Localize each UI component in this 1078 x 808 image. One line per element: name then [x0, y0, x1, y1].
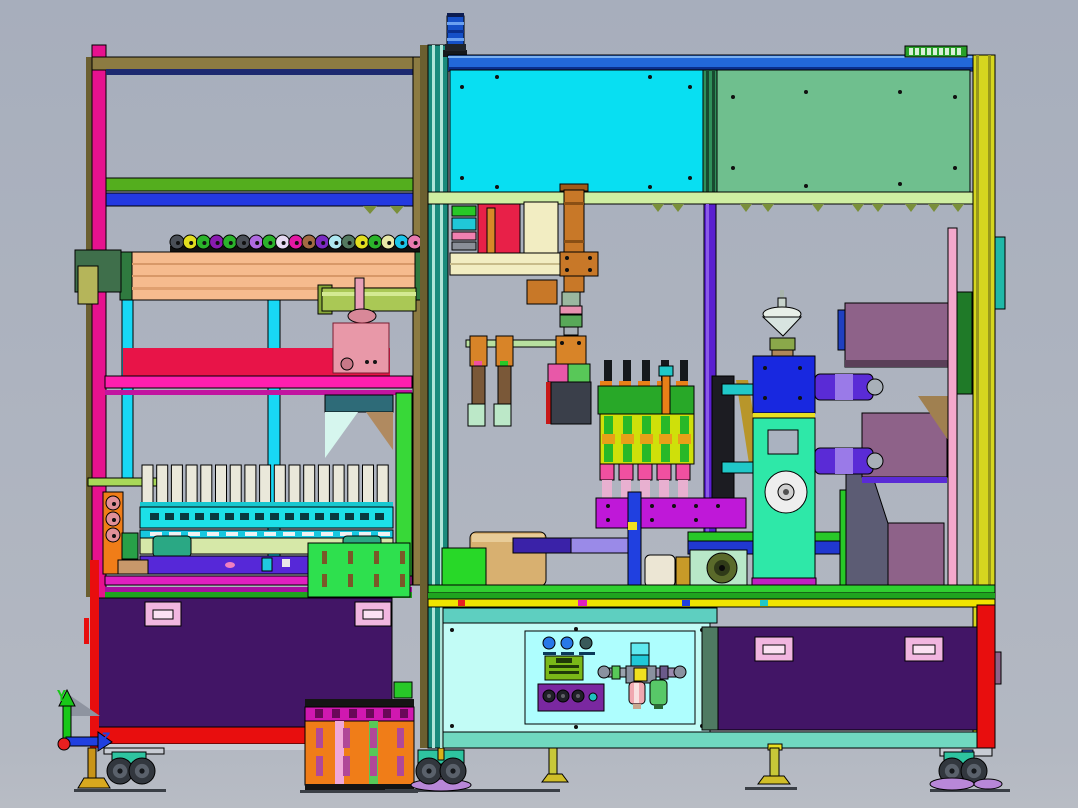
gold-coil — [676, 557, 690, 586]
green-cylinder — [322, 288, 416, 311]
small-button — [589, 693, 597, 701]
deck-green-band — [428, 585, 995, 593]
rail-slot — [315, 513, 324, 520]
rail-slot — [210, 513, 219, 520]
cylinder-endcap — [867, 453, 883, 469]
center-rear-post — [420, 45, 428, 748]
leg-tab — [628, 522, 637, 530]
dash — [264, 532, 276, 536]
cabinet-handle-inner — [763, 645, 785, 654]
slate-edge — [546, 382, 551, 424]
left-mount-plate — [78, 266, 98, 304]
valve-stem — [642, 360, 650, 384]
valve-orange-column — [662, 376, 670, 414]
axis-z-arrow-body — [66, 737, 98, 746]
cabinet-handle-inner — [913, 645, 935, 654]
shadow — [385, 789, 560, 792]
crate-band-slot — [400, 709, 408, 718]
copper-ring-block — [560, 252, 598, 276]
teal-shaft — [722, 384, 754, 395]
right-red-post — [977, 605, 995, 748]
deck-tick — [578, 600, 587, 606]
feeder-disc-hole — [216, 241, 220, 245]
rail-slot — [300, 513, 309, 520]
caster-wheel-hub — [139, 768, 144, 773]
crate-band-slot — [349, 709, 357, 718]
feeder-disc-hole — [374, 241, 378, 245]
cyan-guard-panel — [450, 70, 703, 193]
indicator-lamp — [543, 637, 555, 649]
white-cylinder — [645, 555, 675, 587]
rail-slot — [330, 513, 339, 520]
cream-column — [524, 202, 558, 253]
crate-slot — [370, 728, 377, 748]
leveling-foot-stem — [88, 748, 96, 782]
table-bolt — [716, 504, 720, 508]
table-bolt — [606, 518, 610, 522]
plate-slot — [348, 574, 353, 587]
peach-beam-stripe — [132, 275, 418, 277]
feeder-disc-hole — [202, 241, 206, 245]
indicator-lamp — [580, 637, 592, 649]
white-plate — [260, 465, 271, 503]
white-plate — [230, 465, 241, 503]
feeder-disc-hole — [189, 241, 193, 245]
coupler-nut — [564, 327, 578, 335]
deck-tick — [760, 600, 768, 606]
feeder-disc-hole — [308, 241, 312, 245]
leveling-foot-pad — [78, 778, 110, 788]
bracket-pink — [548, 364, 568, 382]
bolt — [565, 256, 569, 260]
panel-screw — [688, 85, 692, 89]
terminal-slot — [915, 48, 919, 55]
divider-stripe — [706, 70, 709, 193]
valve-pillar — [602, 480, 612, 498]
left-top-beam — [92, 57, 425, 70]
plate-slot — [374, 574, 379, 587]
panel-screw — [460, 176, 464, 180]
cylinder-highlight — [322, 292, 416, 296]
mint-plate — [494, 404, 511, 426]
copper-ring — [564, 240, 584, 243]
cylinder-endcap — [867, 379, 883, 395]
teal-block — [325, 395, 393, 412]
stack-block — [452, 242, 476, 250]
crate-band-slot — [315, 709, 323, 718]
green-guard-panel — [717, 70, 970, 193]
orange-tube — [487, 208, 495, 254]
panel-screw — [953, 166, 957, 170]
copper-block — [527, 280, 557, 304]
rail-slot — [180, 513, 189, 520]
crate-slot — [343, 728, 350, 748]
frl-lubricator-bowl — [650, 680, 667, 705]
feeder-disc-hole — [400, 241, 404, 245]
indicator-lamp — [561, 637, 573, 649]
panel-screw — [953, 95, 957, 99]
white-plate — [142, 465, 153, 503]
crate-slot — [397, 756, 404, 776]
plate-slot — [374, 551, 379, 564]
white-plate — [363, 465, 374, 503]
side-tab — [995, 652, 1001, 684]
table-bolt — [694, 504, 698, 508]
valve-pillar — [659, 480, 669, 498]
left-cross-rail — [88, 478, 166, 486]
terminal-slot — [945, 48, 949, 55]
motor-vent — [373, 360, 377, 364]
valve-collar — [640, 434, 653, 444]
axis-z-label: Z — [100, 731, 110, 747]
knob-hole — [112, 534, 116, 538]
coupler — [562, 292, 580, 306]
red-unit-box — [478, 204, 520, 254]
table-bolt — [694, 518, 698, 522]
orange-actuator — [556, 336, 586, 364]
funnel-base — [770, 338, 795, 350]
plate-rail — [140, 502, 393, 507]
valve-base — [676, 464, 690, 480]
caster-pad — [930, 778, 974, 790]
panel-screw — [574, 725, 578, 729]
lamp-label-mark — [561, 652, 574, 655]
axis-y-label: Y — [57, 687, 66, 705]
left-top-beam-navy-stripe — [106, 69, 425, 75]
panel-screw — [804, 90, 808, 94]
feeder-disc-hole — [282, 241, 286, 245]
left-green-beam — [106, 178, 413, 191]
terminal-slot — [927, 48, 931, 55]
plate-slot — [322, 551, 327, 564]
terminal-slot — [951, 48, 955, 55]
magenta-rail-thin — [105, 390, 412, 395]
panel-screw — [495, 185, 499, 189]
feeder-disc-hole — [334, 241, 338, 245]
bolt — [560, 341, 564, 345]
dash — [169, 532, 181, 536]
valve-collar — [678, 434, 691, 444]
white-plate — [289, 465, 300, 503]
leveling-foot-pad — [758, 776, 790, 784]
panel-screw — [495, 75, 499, 79]
green-plate — [442, 548, 486, 588]
deck-tick — [682, 600, 690, 606]
rail-slot — [375, 513, 384, 520]
band-widget — [225, 562, 235, 568]
post-highlight — [432, 45, 435, 748]
caster-wheel-hub — [949, 768, 954, 773]
gear-wheel-hub — [719, 565, 725, 571]
caster-wheel-hub — [117, 768, 122, 773]
cabinet-handle-inner — [363, 610, 383, 619]
white-plate — [333, 465, 344, 503]
dash — [302, 532, 314, 536]
dash — [359, 532, 371, 536]
terminal-slot — [909, 48, 913, 55]
table-bolt — [650, 518, 654, 522]
rail-slot — [285, 513, 294, 520]
yellow-stripe — [753, 413, 815, 418]
motor-bolt — [341, 358, 353, 370]
blue-tab — [838, 310, 845, 350]
button-center — [561, 694, 565, 698]
rail-slot — [360, 513, 369, 520]
bowl-tip — [654, 705, 663, 709]
deck-tick — [458, 600, 465, 606]
white-plate — [304, 465, 315, 503]
slate-block — [551, 382, 591, 424]
crate-slot — [397, 728, 404, 748]
panel-screw — [450, 724, 454, 728]
lamp-label-mark — [579, 652, 595, 655]
valve-teal-cap — [659, 366, 673, 376]
motor-vent — [365, 360, 369, 364]
dash — [150, 532, 162, 536]
divider-stripe — [712, 70, 715, 193]
mauve-box — [845, 303, 948, 367]
coupler-body — [560, 315, 582, 327]
frl-top-cap — [631, 643, 649, 655]
beacon-ring — [445, 44, 466, 51]
white-plate — [377, 465, 388, 503]
teal-shaft — [722, 462, 754, 473]
cad-viewport[interactable]: YZ — [0, 0, 1078, 808]
panel-screw — [898, 182, 902, 186]
valve-stem — [604, 360, 612, 384]
feeder-disc-hole — [229, 241, 233, 245]
stack-block — [452, 218, 476, 230]
rail-slot — [150, 513, 159, 520]
bolt — [565, 268, 569, 272]
terminal-slot — [939, 48, 943, 55]
button-center — [547, 694, 551, 698]
nameplate-line — [556, 658, 572, 663]
peach-beam-endcap — [120, 252, 132, 300]
crate-slot — [370, 756, 377, 776]
deck-yellow-band — [428, 599, 995, 607]
magenta-rail — [105, 376, 412, 388]
purple-table — [596, 498, 746, 528]
mauve-box-rail — [862, 477, 947, 483]
crate-tab — [394, 682, 412, 698]
tan-block — [118, 560, 148, 574]
white-plate — [348, 465, 359, 503]
table-bolt — [672, 504, 676, 508]
lamp-label-mark — [543, 652, 556, 655]
crate-band-slot — [383, 709, 391, 718]
dash — [226, 532, 238, 536]
beacon-cap — [447, 13, 464, 17]
left-red-post — [90, 560, 99, 748]
table-bolt — [650, 504, 654, 508]
white-plate — [318, 465, 329, 503]
left-blue-beam — [106, 193, 413, 206]
control-top-band — [443, 608, 717, 623]
valve-collar — [659, 434, 672, 444]
panel-screw — [731, 95, 735, 99]
plate-slot — [400, 574, 405, 587]
crate-band-slot — [332, 709, 340, 718]
rail-slot — [345, 513, 354, 520]
cyan-slot-rail — [140, 507, 393, 528]
feeder-disc-hole — [295, 241, 299, 245]
rail-slot — [255, 513, 264, 520]
dash — [283, 532, 295, 536]
caster-wheel-hub — [971, 768, 976, 773]
valve-collar — [602, 434, 615, 444]
crate-slot — [343, 756, 350, 776]
mauve-box-edge — [845, 360, 948, 367]
valve-stem — [623, 360, 631, 384]
mid-rail — [428, 192, 973, 204]
bracket-green — [568, 364, 590, 382]
dash — [378, 532, 390, 536]
valve-collar — [621, 434, 634, 444]
rail-slot — [225, 513, 234, 520]
nameplate-line — [549, 665, 579, 668]
slide-beam-dark — [513, 538, 571, 553]
cad-canvas: YZ — [0, 0, 1078, 808]
valve-base — [657, 464, 671, 480]
frl-knob — [634, 668, 647, 681]
mauve-box — [888, 523, 944, 585]
beacon-stripe — [447, 22, 464, 25]
white-plate — [216, 465, 227, 503]
panel-screw — [688, 176, 692, 180]
mint-plate — [468, 404, 485, 426]
terminal-slot — [933, 48, 937, 55]
band-widget — [282, 559, 290, 567]
white-plate — [245, 465, 256, 503]
conveyor-drum — [153, 536, 191, 557]
copper-ring — [564, 202, 584, 205]
panel-screw — [648, 75, 652, 79]
shadow — [745, 787, 797, 790]
knob-hole — [112, 502, 116, 506]
green-box — [122, 533, 138, 559]
sage-strip — [702, 627, 718, 730]
bolt — [577, 341, 581, 345]
crate-top-rim — [305, 699, 414, 707]
caster-wheel-hub — [450, 768, 455, 773]
panel-screw — [898, 90, 902, 94]
handwheel-hub — [783, 489, 789, 495]
feeder-disc-hole — [242, 241, 246, 245]
red-tab — [84, 618, 89, 644]
dash — [245, 532, 257, 536]
crate-slot — [316, 756, 323, 776]
dash — [321, 532, 333, 536]
feeder-disc-hole — [361, 241, 365, 245]
terminal-slot — [921, 48, 925, 55]
plate-slot — [400, 551, 405, 564]
white-plate — [186, 465, 197, 503]
coupler-ring — [560, 306, 582, 314]
beacon-stripe — [447, 38, 464, 41]
panel-screw — [574, 627, 578, 631]
deck-green-band-dark — [428, 593, 995, 599]
band-widget — [262, 558, 272, 571]
bolt — [588, 256, 592, 260]
side-hinge — [995, 237, 1005, 309]
frl-purple-ring — [660, 666, 668, 679]
white-plate — [201, 465, 212, 503]
bolt — [763, 366, 767, 370]
dash — [188, 532, 200, 536]
plate-slot — [348, 551, 353, 564]
feeder-disc-hole — [255, 241, 259, 245]
nameplate-line — [549, 671, 579, 674]
pink-rod — [355, 278, 364, 312]
cylinder-band — [835, 448, 853, 474]
plate-slot — [322, 574, 327, 587]
feeder-disc-hole — [414, 241, 418, 245]
button-center — [576, 694, 580, 698]
peach-beam-stripe — [132, 263, 418, 265]
valve-base — [600, 464, 614, 480]
slide-beam-light — [571, 538, 629, 553]
valve-pillar — [678, 480, 688, 498]
panel-screw — [731, 166, 735, 170]
panel-screw — [804, 184, 808, 188]
feeder-disc-hole — [268, 241, 272, 245]
white-plate — [157, 465, 168, 503]
cabinet-handle-inner — [153, 610, 173, 619]
valve-stem — [680, 360, 688, 384]
dark-green-panel — [957, 292, 972, 394]
rail-slot — [240, 513, 249, 520]
bolt — [763, 396, 767, 400]
crate-slot — [316, 728, 323, 748]
dash — [207, 532, 219, 536]
feeder-disc-hole — [321, 241, 325, 245]
bolt — [588, 268, 592, 272]
feeder-disc-hole — [348, 241, 352, 245]
blue-gearbox — [753, 356, 815, 413]
white-plate — [274, 465, 285, 503]
valve-base — [619, 464, 633, 480]
axis-origin — [58, 738, 70, 750]
valve-base — [638, 464, 652, 480]
panel-screw — [450, 628, 454, 632]
beacon-stripe — [447, 30, 464, 33]
shadow — [74, 789, 166, 792]
column-window — [768, 430, 798, 454]
frl-nut — [598, 666, 610, 678]
terminal-slot — [957, 48, 961, 55]
bowl-highlight — [634, 683, 639, 703]
dash — [340, 532, 352, 536]
caster-wheel-hub — [426, 768, 431, 773]
frl-green-ring — [612, 666, 620, 679]
cylinder-band — [835, 374, 853, 400]
panel-screw — [648, 185, 652, 189]
feeder-disc-hole — [176, 241, 180, 245]
blue-leg — [628, 492, 641, 585]
frl-top-body — [631, 655, 649, 667]
rail-slot — [165, 513, 174, 520]
crate-band-slot — [366, 709, 374, 718]
pink-strip — [948, 228, 957, 585]
caster-pad — [974, 779, 1002, 789]
leveling-foot-stem — [549, 748, 557, 774]
frl-nut — [674, 666, 686, 678]
rail-slot — [270, 513, 279, 520]
feeder-disc-hole — [387, 241, 391, 245]
valve-manifold — [598, 386, 694, 414]
bolt — [798, 366, 802, 370]
